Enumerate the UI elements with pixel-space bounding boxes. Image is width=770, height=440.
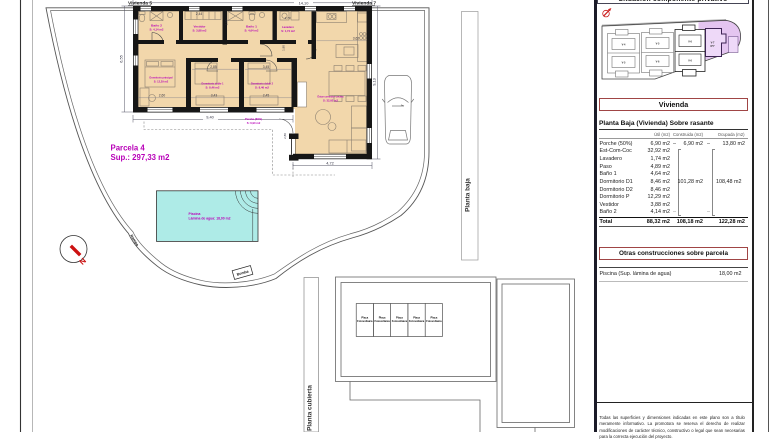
svg-text:2,85: 2,85 (210, 65, 217, 69)
svg-text:S: 8,46 m2: S: 8,46 m2 (255, 86, 269, 90)
svg-text:V-4: V-4 (622, 44, 626, 47)
svg-text:S: 8,46 m2: S: 8,46 m2 (206, 86, 220, 90)
svg-text:Planta cubierta: Planta cubierta (307, 385, 314, 431)
svg-text:V-6: V-6 (688, 41, 692, 44)
svg-text:S: 12,29 m2: S: 12,29 m2 (154, 80, 169, 84)
svg-text:9,40: 9,40 (206, 115, 214, 120)
svg-text:9,13: 9,13 (372, 78, 377, 86)
svg-text:2,44: 2,44 (196, 12, 203, 16)
svg-text:4,72: 4,72 (326, 160, 334, 165)
svg-text:1,70: 1,70 (285, 16, 291, 20)
svg-text:S: 4,14 m2: S: 4,14 m2 (150, 28, 164, 32)
svg-text:Placa: Placa (413, 315, 420, 319)
svg-text:6,55: 6,55 (118, 55, 123, 63)
svg-text:V-6: V-6 (688, 60, 692, 63)
svg-text:Placa: Placa (396, 315, 403, 319)
svg-text:1,80: 1,80 (281, 45, 285, 51)
svg-text:S: 32,92 m2: S: 32,92 m2 (323, 99, 338, 103)
svg-text:Placa: Placa (361, 315, 368, 319)
svg-text:Lámina de agua: 18,00 m2: Lámina de agua: 18,00 m2 (189, 217, 231, 221)
svg-text:Nº7: Nº7 (710, 45, 715, 48)
svg-text:N: N (78, 256, 89, 267)
svg-text:2,60: 2,60 (159, 94, 166, 98)
svg-text:3,62: 3,62 (353, 36, 360, 40)
svg-text:Fotovoltaica: Fotovoltaica (409, 319, 425, 323)
svg-text:S: 6,90 m2: S: 6,90 m2 (247, 121, 261, 125)
svg-text:Sup.: 297,33 m2: Sup.: 297,33 m2 (111, 153, 171, 162)
svg-text:V-6: V-6 (656, 61, 660, 64)
svg-text:Piscina: Piscina (189, 212, 201, 216)
svg-text:S: 1,74 m2: S: 1,74 m2 (281, 29, 295, 33)
svg-text:14,10: 14,10 (299, 1, 310, 6)
svg-text:2,80: 2,80 (283, 133, 287, 139)
svg-text:Planta baja: Planta baja (465, 178, 472, 212)
svg-text:1,55: 1,55 (224, 19, 228, 25)
svg-text:Placa: Placa (431, 315, 438, 319)
svg-text:S: 3,88 m2: S: 3,88 m2 (193, 29, 207, 33)
svg-text:Parcela 4: Parcela 4 (111, 144, 146, 153)
svg-text:V-5: V-5 (622, 62, 626, 65)
svg-text:Fotovoltaica: Fotovoltaica (392, 319, 408, 323)
svg-text:Fotovoltaica: Fotovoltaica (357, 319, 373, 323)
svg-text:V-5: V-5 (656, 43, 660, 46)
svg-text:3,43: 3,43 (211, 94, 218, 98)
svg-text:2,45: 2,45 (263, 94, 270, 98)
svg-text:Fotovoltaica: Fotovoltaica (426, 319, 442, 323)
svg-text:Fotovoltaica: Fotovoltaica (374, 319, 390, 323)
svg-text:S: 4,64 m2: S: 4,64 m2 (245, 29, 259, 33)
svg-text:Placa: Placa (379, 315, 386, 319)
svg-text:3,45: 3,45 (263, 65, 270, 69)
